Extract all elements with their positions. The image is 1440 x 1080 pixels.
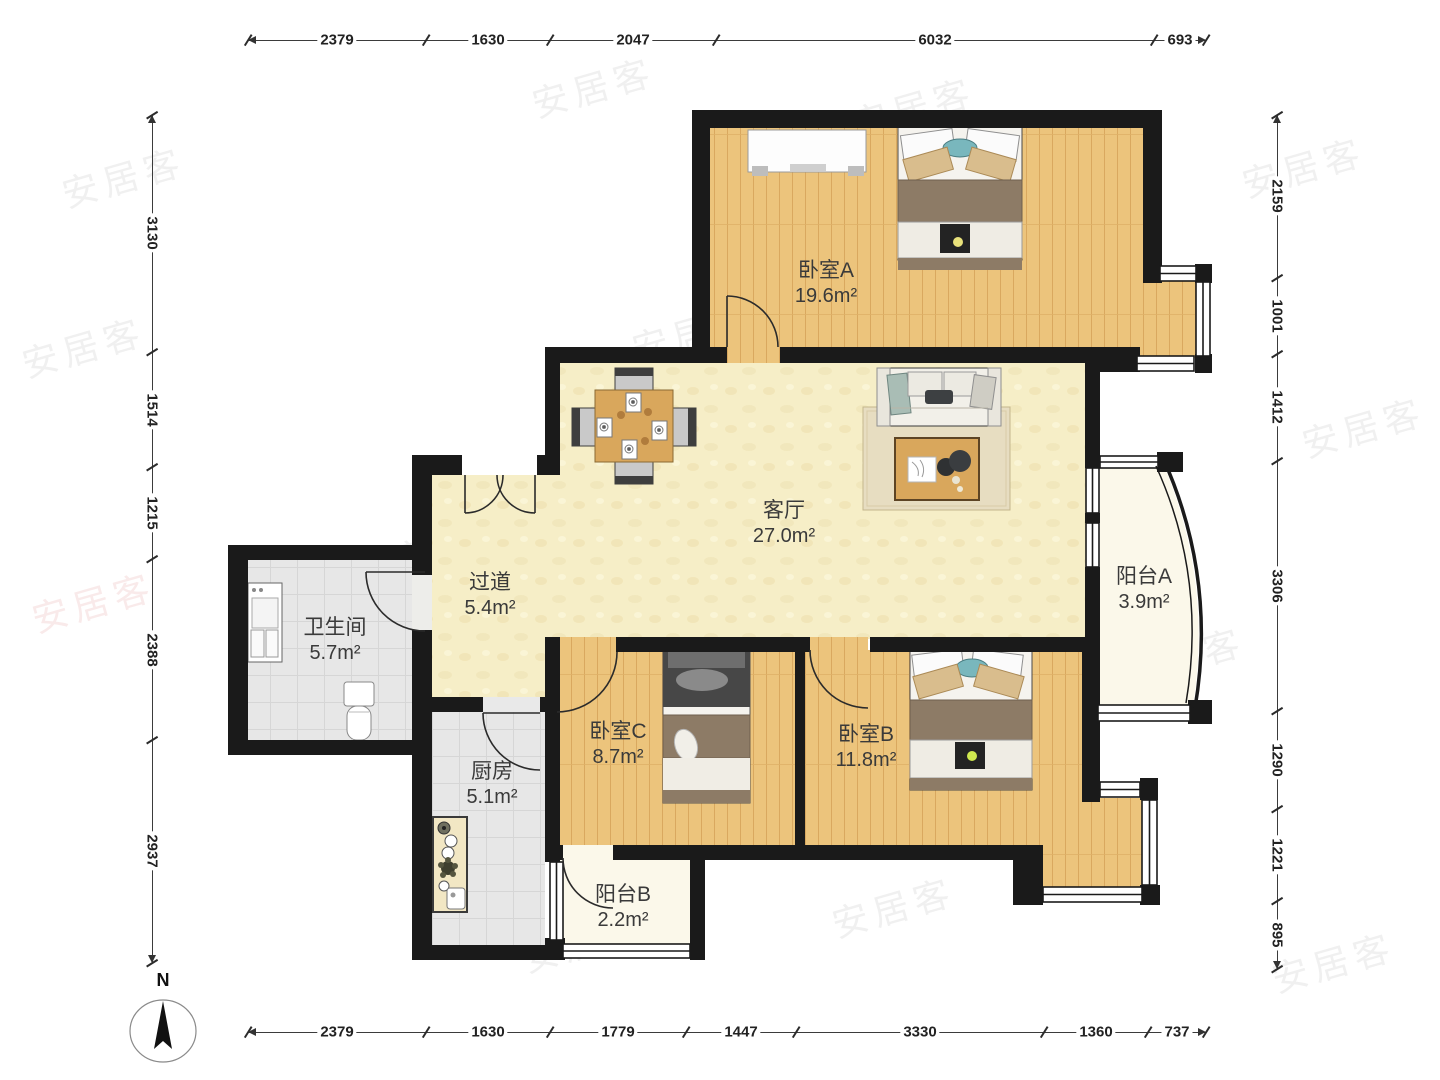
dim-label: 2379 xyxy=(317,1024,356,1041)
dim-label: 1779 xyxy=(598,1024,637,1041)
dim-label: 2047 xyxy=(613,32,652,49)
room-label-bedroom-b: 卧室B 11.8m² xyxy=(796,722,936,772)
dim-label: 3330 xyxy=(900,1024,939,1041)
dim-label: 1630 xyxy=(468,1024,507,1041)
room-name: 卧室A xyxy=(756,258,896,284)
dim-label: 1630 xyxy=(468,32,507,49)
room-area: 3.9m² xyxy=(1074,590,1214,614)
dim-label: 1514 xyxy=(144,390,161,429)
room-area: 5.4m² xyxy=(420,596,560,620)
furniture-kitchen xyxy=(433,817,467,912)
sofa xyxy=(877,368,1001,426)
floor-plan-page: 安居客 安居客 安居客 安居客 安居客 安居客 安居客 安居客 安居客 安居客 … xyxy=(0,0,1440,1080)
room-label-living: 客厅 27.0m² xyxy=(714,498,854,548)
dim-label: 3130 xyxy=(144,213,161,252)
room-name: 卧室C xyxy=(548,719,688,745)
double-bed-a xyxy=(898,127,1022,270)
dim-label: 1447 xyxy=(721,1024,760,1041)
room-name: 卫生间 xyxy=(265,615,405,641)
room-area: 5.1m² xyxy=(422,785,562,809)
room-area: 2.2m² xyxy=(553,908,693,932)
north-compass xyxy=(130,1000,196,1062)
dim-label: 693 xyxy=(1164,32,1195,49)
furniture-sofa-set xyxy=(863,368,1010,510)
room-label-balcony-b: 阳台B 2.2m² xyxy=(553,882,693,932)
room-name: 阳台A xyxy=(1074,564,1214,590)
room-area: 5.7m² xyxy=(265,641,405,665)
room-label-bedroom-a: 卧室A 19.6m² xyxy=(756,258,896,308)
dim-label: 6032 xyxy=(915,32,954,49)
dim-label: 2159 xyxy=(1269,176,1286,215)
coffee-table xyxy=(895,438,979,500)
room-name: 过道 xyxy=(420,570,560,596)
room-area: 19.6m² xyxy=(756,284,896,308)
room-label-bathroom: 卫生间 5.7m² xyxy=(265,615,405,665)
room-label-bedroom-c: 卧室C 8.7m² xyxy=(548,719,688,769)
dim-label: 2388 xyxy=(144,630,161,669)
room-label-hallway: 过道 5.4m² xyxy=(420,570,560,620)
room-name: 客厅 xyxy=(714,498,854,524)
dim-label: 2937 xyxy=(144,831,161,870)
stove-burner-icon xyxy=(438,822,450,834)
dim-label: 1360 xyxy=(1076,1024,1115,1041)
dim-label: 1221 xyxy=(1269,835,1286,874)
kitchen-sink xyxy=(447,888,465,909)
dim-label: 1412 xyxy=(1269,387,1286,426)
room-area: 11.8m² xyxy=(796,748,936,772)
room-name: 阳台B xyxy=(553,882,693,908)
room-area: 27.0m² xyxy=(714,524,854,548)
room-label-kitchen: 厨房 5.1m² xyxy=(422,759,562,809)
room-area: 8.7m² xyxy=(548,745,688,769)
dim-label: 1001 xyxy=(1269,296,1286,335)
room-label-balcony-a: 阳台A 3.9m² xyxy=(1074,564,1214,614)
room-name: 厨房 xyxy=(422,759,562,785)
dim-label: 2379 xyxy=(317,32,356,49)
compass-north-label: N xyxy=(150,970,176,991)
dim-label: 1290 xyxy=(1269,740,1286,779)
dim-label: 737 xyxy=(1161,1024,1192,1041)
dim-label: 895 xyxy=(1269,919,1286,950)
toilet xyxy=(344,682,374,740)
room-name: 卧室B xyxy=(796,722,936,748)
dim-label: 1215 xyxy=(144,493,161,532)
dim-label: 3306 xyxy=(1269,566,1286,605)
